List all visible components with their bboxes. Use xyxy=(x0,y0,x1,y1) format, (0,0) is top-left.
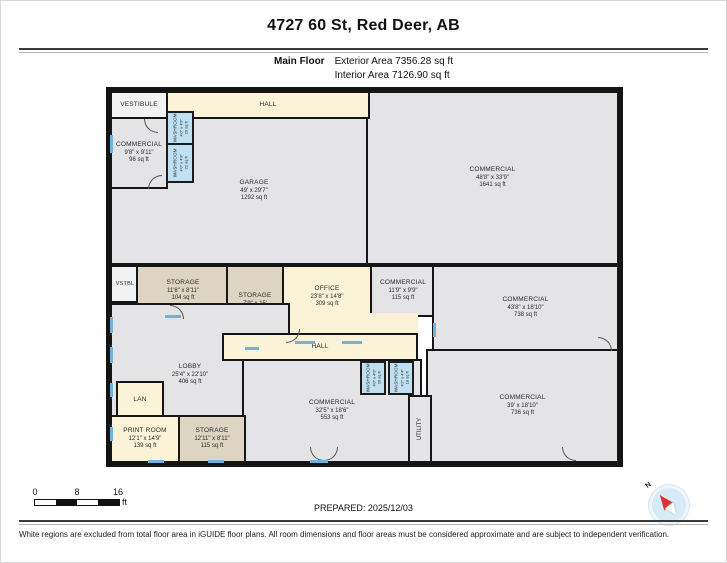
floor-label: Main Floor xyxy=(274,56,325,84)
room-utility: UTILITY xyxy=(408,395,432,463)
room-area: 406 sq ft xyxy=(172,379,208,387)
room-print-room: PRINT ROOM 12'1" x 14'9" 139 sq ft xyxy=(110,415,180,463)
room-dims: 4'2" x 4'4" xyxy=(399,364,404,393)
room-commercial-1641: COMMERCIAL 48'8" x 33'9" 1641 sq ft xyxy=(366,91,619,265)
scale-tick-16: 16 xyxy=(113,487,123,497)
floor-plan: GARAGE 49' x 29'7" 1292 sq ft COMMERCIAL… xyxy=(106,87,623,467)
room-name: COMMERCIAL xyxy=(380,279,426,287)
room-dims: 4'0" x 4'9" xyxy=(178,149,183,178)
room-name: HALL xyxy=(311,343,328,351)
room-lan: LAN xyxy=(116,381,164,419)
scale-tick-0: 0 xyxy=(32,487,37,497)
room-name: VESTIBULE xyxy=(120,101,158,109)
room-name: WASHROOM xyxy=(365,364,371,393)
window-marker xyxy=(310,460,328,463)
room-dims: 4'0" x 4'9" xyxy=(178,114,183,143)
floor-plan-page: 4727 60 St, Red Deer, AB Main Floor Exte… xyxy=(0,0,727,563)
room-area: 96 sq ft xyxy=(116,157,162,165)
room-name: OFFICE xyxy=(311,285,344,293)
room-name: COMMERCIAL xyxy=(309,399,355,407)
room-area: 139 sq ft xyxy=(123,443,166,451)
room-name: STORAGE xyxy=(194,427,229,435)
room-name: LOBBY xyxy=(172,363,208,371)
room-dims: 23'8" x 14'8" xyxy=(311,294,344,302)
room-area: 736 sq ft xyxy=(499,410,545,418)
room-name: COMMERCIAL xyxy=(116,141,162,149)
window-marker xyxy=(433,323,436,337)
room-name: WASHROOM xyxy=(172,149,178,178)
room-area: 309 sq ft xyxy=(311,301,344,309)
interior-area: Interior Area 7126.90 sq ft xyxy=(335,70,453,81)
window-marker xyxy=(245,347,259,350)
room-name: UTILITY xyxy=(417,418,423,440)
room-washroom-18: WASHROOM 4'2" x 4'4" 18 sq ft xyxy=(388,361,414,395)
footer-divider xyxy=(19,520,708,525)
room-area: 23 sq ft xyxy=(183,114,188,143)
room-area: 115 sq ft xyxy=(194,443,229,451)
room-washroom-20: WASHROOM 4'0" x 4'9" 20 sq ft xyxy=(360,361,386,395)
room-storage-115: STORAGE 12'11" x 8'11" 115 sq ft xyxy=(178,415,246,463)
floor-info: Main Floor Exterior Area 7356.28 sq ft I… xyxy=(1,56,726,84)
floor-areas: Exterior Area 7356.28 sq ft Interior Are… xyxy=(335,56,453,84)
room-name: COMMERCIAL xyxy=(499,394,545,402)
room-commercial-115: COMMERCIAL 11'9" x 9'9" 115 sq ft xyxy=(370,265,436,317)
scale-tick-8: 8 xyxy=(74,487,79,497)
room-area: 1641 sq ft xyxy=(469,182,515,190)
room-name: WASHROOM xyxy=(393,364,399,393)
room-name: STORAGE xyxy=(166,279,199,287)
exterior-area: Exterior Area 7356.28 sq ft xyxy=(335,56,453,67)
room-dims: 25'4" x 22'10" xyxy=(172,372,208,380)
room-name: HALL xyxy=(259,101,276,109)
room-name: PRINT ROOM xyxy=(123,427,166,435)
north-label: N xyxy=(644,481,652,490)
window-marker xyxy=(110,135,113,153)
room-name: COMMERCIAL xyxy=(469,166,515,174)
window-marker xyxy=(110,347,113,363)
room-name: COMMERCIAL xyxy=(502,296,548,304)
room-dims: 39' x 18'10" xyxy=(499,403,545,411)
room-dims: 12'1" x 14'9" xyxy=(123,436,166,444)
room-name: WASHROOM xyxy=(172,114,178,143)
room-name: VSTBL xyxy=(116,281,134,288)
window-marker xyxy=(148,460,164,463)
room-area: 104 sq ft xyxy=(166,295,199,303)
room-hall-top: HALL xyxy=(166,91,370,119)
window-marker xyxy=(342,341,362,344)
room-area: 20 sq ft xyxy=(376,364,381,393)
window-marker xyxy=(208,460,224,463)
room-dims: 4'0" x 4'9" xyxy=(371,364,376,393)
room-dims: 43'8" x 18'10" xyxy=(502,305,548,313)
room-area: 738 sq ft xyxy=(502,312,548,320)
room-name: STORAGE xyxy=(238,292,271,300)
room-dims: 12'11" x 8'11" xyxy=(194,436,229,444)
room-area: 553 sq ft xyxy=(309,415,355,423)
room-washroom-23: WASHROOM 4'0" x 4'9" 23 sq ft xyxy=(166,111,194,145)
room-area: 115 sq ft xyxy=(380,295,426,303)
room-area: 1292 sq ft xyxy=(239,195,268,203)
disclaimer-text: White regions are excluded from total fl… xyxy=(19,530,716,539)
window-marker xyxy=(110,427,113,441)
room-dims: 48'8" x 33'9" xyxy=(469,175,515,183)
compass-icon xyxy=(652,488,686,522)
room-area: 18 sq ft xyxy=(404,364,409,393)
window-marker xyxy=(110,317,113,333)
room-name: LAN xyxy=(133,396,146,404)
window-marker xyxy=(165,315,181,318)
room-dims: 11'9" x 9'9" xyxy=(380,288,426,296)
room-dims: 32'5" x 18'6" xyxy=(309,408,355,416)
room-dims: 9'8" x 9'11" xyxy=(116,150,162,158)
room-commercial-738: COMMERCIAL 43'8" x 18'10" 738 sq ft xyxy=(432,265,619,351)
room-washroom-22: WASHROOM 4'0" x 4'9" 22 sq ft xyxy=(166,143,194,183)
room-area: 22 sq ft xyxy=(183,149,188,178)
room-commercial-736: COMMERCIAL 39' x 18'10" 736 sq ft xyxy=(426,349,619,463)
page-title: 4727 60 St, Red Deer, AB xyxy=(1,17,726,35)
header-divider xyxy=(19,48,708,53)
room-vestibule: VESTIBULE xyxy=(110,91,168,119)
room-name: GARAGE xyxy=(239,179,268,187)
room-dims: 49' x 29'7" xyxy=(239,188,268,196)
window-marker xyxy=(110,383,113,397)
prepared-date: PREPARED: 2025/12/03 xyxy=(1,503,726,513)
window-marker xyxy=(295,341,315,344)
room-dims: 11'8" x 8'11" xyxy=(166,288,199,296)
